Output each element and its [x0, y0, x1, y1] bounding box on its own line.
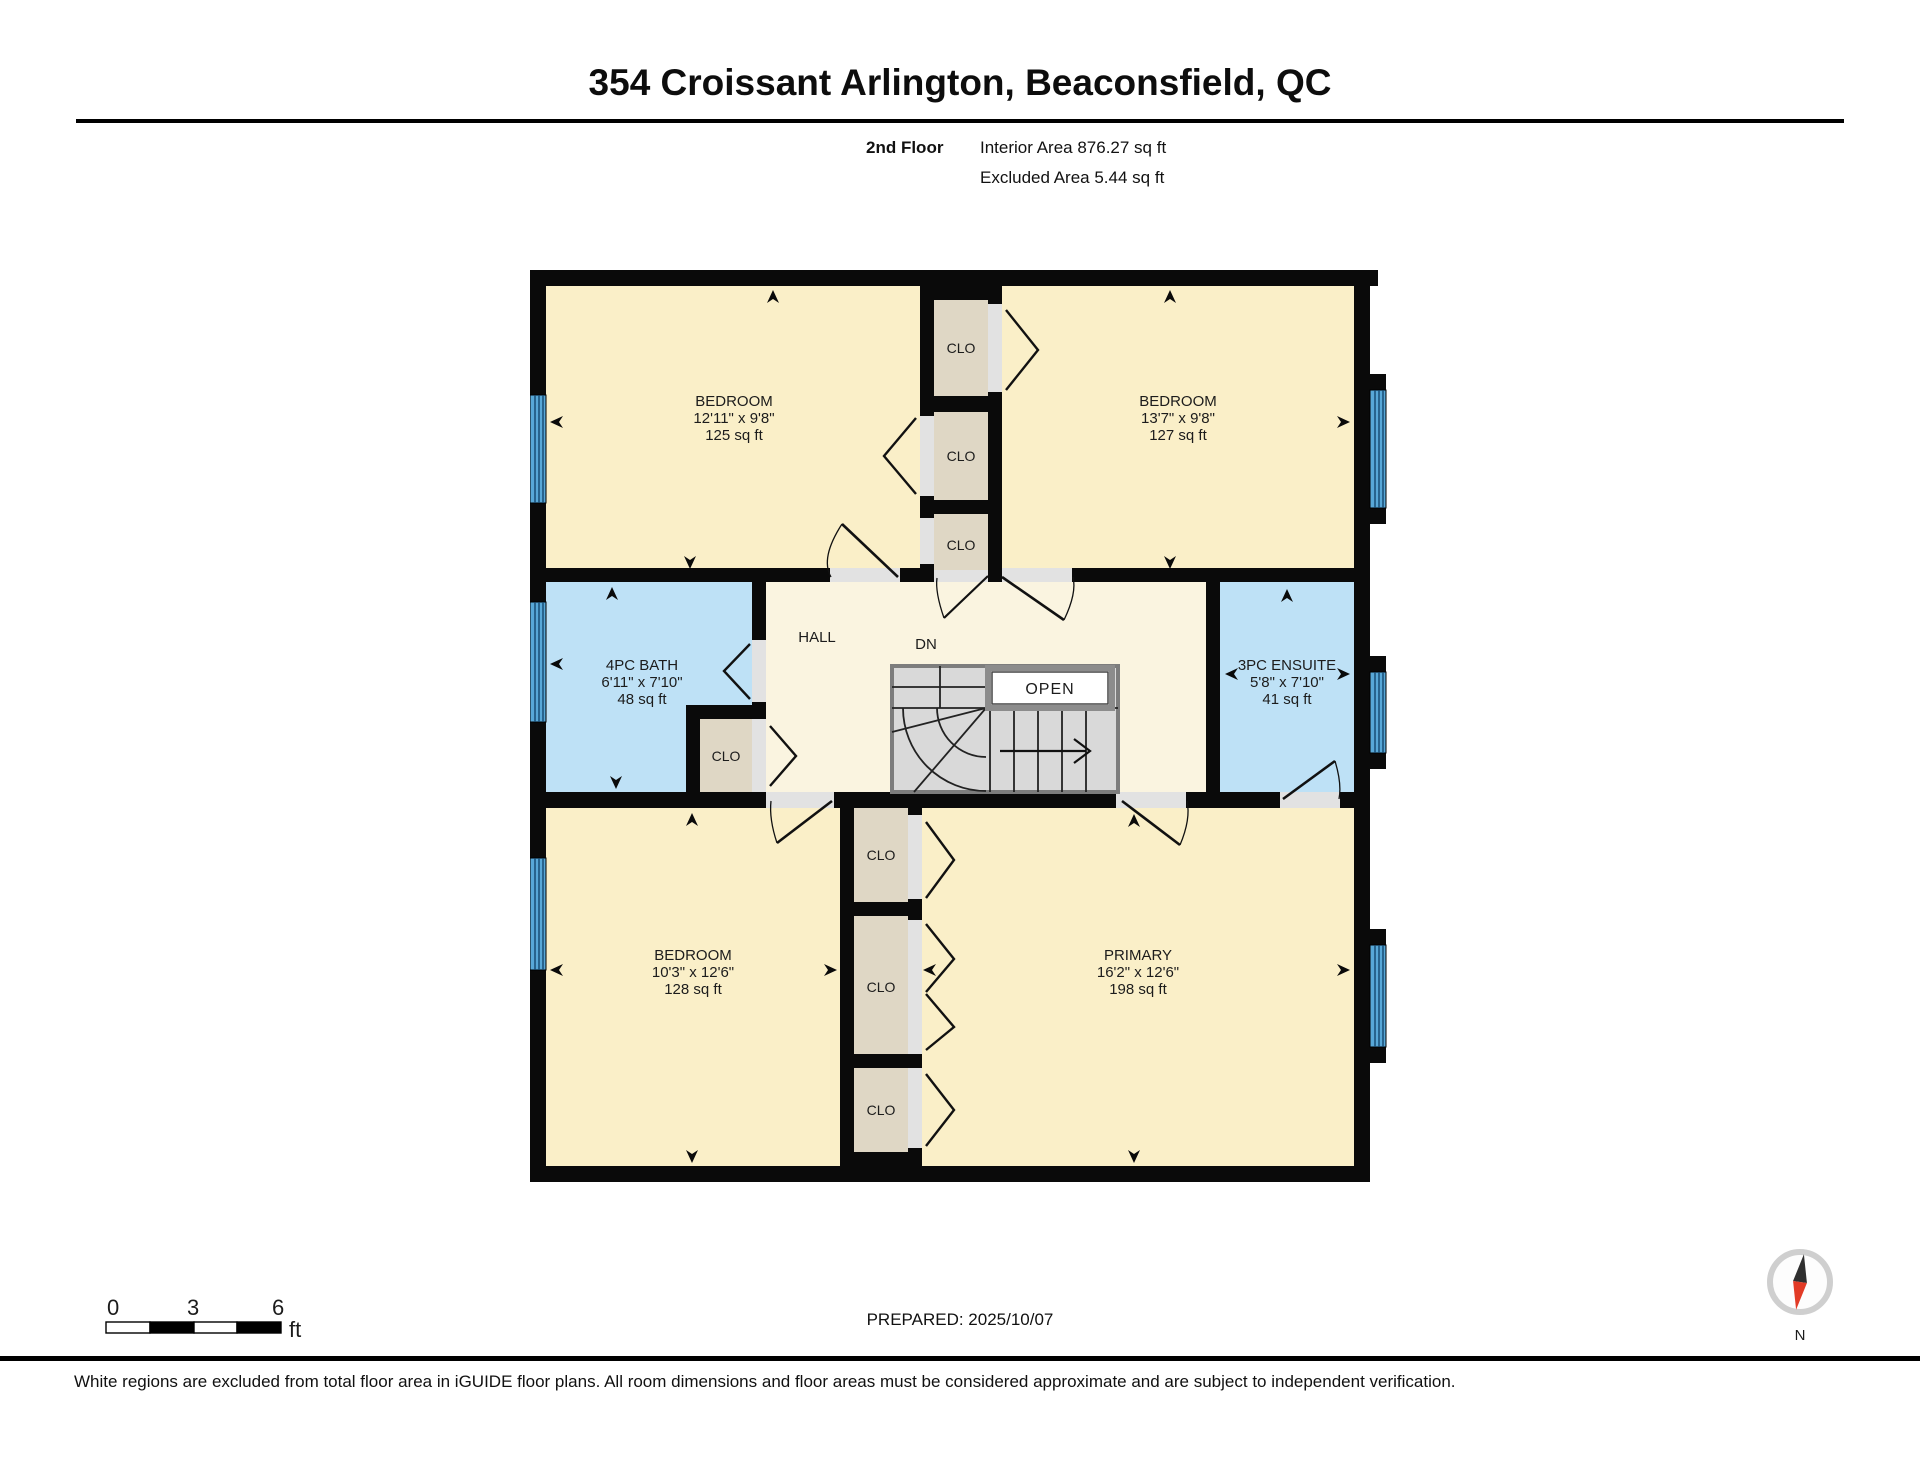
north-label: N: [1795, 1327, 1806, 1344]
bedroom-tr-name: BEDROOM: [1139, 393, 1217, 410]
closet-label: CLO: [947, 448, 976, 464]
stair-down-label: DN: [915, 636, 937, 653]
footer-divider: [0, 1356, 1920, 1361]
interior-area: Interior Area 876.27 sq ft: [980, 138, 1166, 158]
bath-name: 4PC BATH: [606, 657, 678, 674]
window: [1370, 672, 1386, 753]
closet-label: CLO: [867, 979, 896, 995]
bedroom-bl-dims: 10'3" x 12'6": [652, 964, 734, 981]
primary-dims: 16'2" x 12'6": [1097, 964, 1179, 981]
window: [530, 858, 546, 970]
window: [530, 602, 546, 722]
window: [530, 395, 546, 503]
primary-name: PRIMARY: [1104, 947, 1172, 964]
compass-icon: N: [1760, 1244, 1840, 1348]
closet-label: CLO: [947, 340, 976, 356]
bedroom-tl-dims: 12'11" x 9'8": [693, 410, 774, 427]
floor-plan-page: 354 Croissant Arlington, Beaconsfield, Q…: [0, 0, 1920, 1483]
closet-label: CLO: [947, 537, 976, 553]
title-divider: [76, 119, 1844, 123]
window: [1370, 390, 1386, 508]
bedroom-tl-name: BEDROOM: [695, 393, 773, 410]
closet-label: CLO: [867, 847, 896, 863]
bedroom-bl-name: BEDROOM: [654, 947, 732, 964]
closet-label: CLO: [712, 748, 741, 764]
ensuite-area: 41 sq ft: [1262, 691, 1312, 708]
closet-label: CLO: [867, 1102, 896, 1118]
page-title: 354 Croissant Arlington, Beaconsfield, Q…: [0, 62, 1920, 104]
ensuite-name: 3PC ENSUITE: [1238, 657, 1336, 674]
excluded-area: Excluded Area 5.44 sq ft: [980, 168, 1164, 188]
bath-dims: 6'11" x 7'10": [601, 674, 682, 691]
bedroom-tr-area: 127 sq ft: [1149, 427, 1207, 444]
staircase: OPEN: [892, 666, 1118, 792]
bedroom-tr-dims: 13'7" x 9'8": [1141, 410, 1215, 427]
bedroom-bl-area: 128 sq ft: [664, 981, 722, 998]
floor-name: 2nd Floor: [866, 138, 943, 158]
hall-name: HALL: [798, 629, 836, 646]
open-label: OPEN: [1025, 681, 1074, 698]
bedroom-tl-area: 125 sq ft: [705, 427, 763, 444]
bath-area: 48 sq ft: [617, 691, 667, 708]
ensuite-dims: 5'8" x 7'10": [1250, 674, 1324, 691]
open-to-below-box: OPEN: [988, 668, 1112, 708]
disclaimer-text: White regions are excluded from total fl…: [74, 1372, 1456, 1392]
prepared-date: PREPARED: 2025/10/07: [0, 1310, 1920, 1330]
floor-plan: OPEN: [530, 270, 1390, 1190]
primary-area: 198 sq ft: [1109, 981, 1167, 998]
window: [1370, 945, 1386, 1047]
